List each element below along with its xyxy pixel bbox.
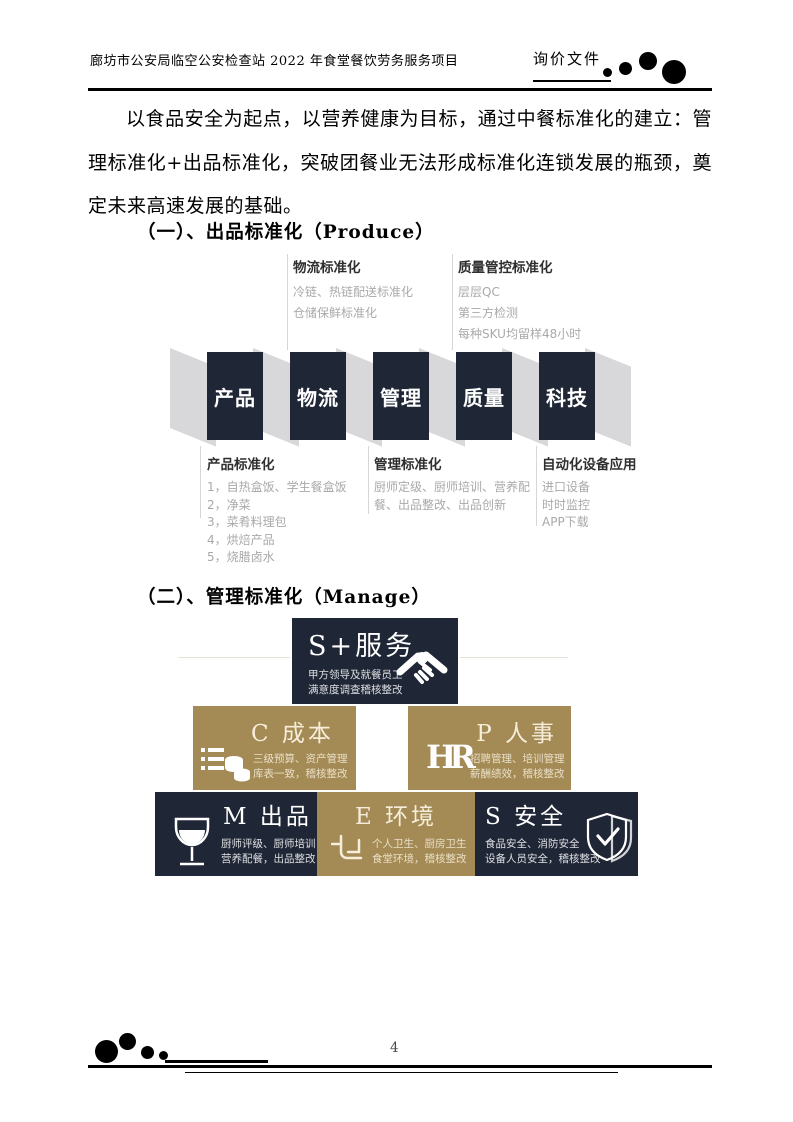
dot-decoration bbox=[662, 60, 686, 84]
management-standardization-group: 管理标准化 厨师定级、厨师培训、营养配餐、出品整改、出品创新 bbox=[374, 453, 534, 514]
group-item: 4，烘焙产品 bbox=[207, 532, 365, 550]
group-item: 第三方检测 bbox=[458, 303, 623, 324]
group-title: 物流标准化 bbox=[293, 256, 458, 276]
dot-decoration bbox=[619, 62, 632, 75]
section-heading-manage: （二）、管理标准化（Manage） bbox=[137, 583, 431, 609]
ledger-coins-icon bbox=[201, 746, 251, 782]
group-item: 冷链、热链配送标准化 bbox=[293, 282, 458, 303]
pillar-product: 产品 bbox=[207, 352, 263, 440]
pillar-management: 管理 bbox=[373, 352, 429, 440]
connector-line bbox=[368, 446, 369, 514]
block-environment: E 环境 个人卫生、厨房卫生 食堂环境，稽核整改 bbox=[317, 792, 475, 876]
group-title: 管理标准化 bbox=[374, 453, 534, 473]
block-personnel: P 人事 招聘管理、培训管理 薪酬绩效，稽核整改 HR bbox=[408, 706, 571, 790]
block-title: M 出品 bbox=[223, 797, 312, 831]
group-item: 每种SKU均留样48小时 bbox=[458, 324, 623, 345]
dot-decoration bbox=[159, 1051, 168, 1060]
header-rule bbox=[88, 88, 712, 91]
group-item: 仓储保鲜标准化 bbox=[293, 303, 458, 324]
connector-line bbox=[200, 446, 201, 518]
wine-glass-icon bbox=[171, 816, 213, 868]
group-item: 5，烧腊卤水 bbox=[207, 549, 365, 567]
footer-thin-rule bbox=[185, 1072, 618, 1073]
desc-line: 甲方领导及就餐员工 bbox=[308, 668, 403, 683]
desc-line: 设备人员安全，稽核整改 bbox=[485, 852, 601, 867]
desc-line: 厨师评级、厨师培训 bbox=[221, 837, 316, 852]
desc-line: 满意度调查稽核整改 bbox=[308, 683, 403, 698]
block-output: M 出品 厨师评级、厨师培训 营养配餐，出品整改 bbox=[155, 792, 317, 876]
quality-control-standardization-group: 质量管控标准化 层层QC 第三方检测 每种SKU均留样48小时 bbox=[458, 256, 623, 345]
group-item: 2，净菜 bbox=[207, 497, 365, 515]
block-desc: 招聘管理、培训管理 薪酬绩效，稽核整改 bbox=[470, 752, 565, 782]
block-desc: 厨师评级、厨师培训 营养配餐，出品整改 bbox=[221, 837, 316, 867]
group-item: 层层QC bbox=[458, 282, 623, 303]
product-standardization-group: 产品标准化 1，自热盒饭、学生餐盒饭 2，净菜 3，菜肴料理包 4，烘焙产品 5… bbox=[207, 453, 365, 567]
desc-line: 营养配餐，出品整改 bbox=[221, 852, 316, 867]
header-title: 廊坊市公安局临空公安检查站 2022 年食堂餐饮劳务服务项目 bbox=[90, 50, 458, 69]
group-item: 厨师定级、厨师培训、营养配餐、出品整改、出品创新 bbox=[374, 479, 534, 514]
dot-decoration bbox=[95, 1040, 118, 1063]
group-item: APP下载 bbox=[542, 514, 692, 532]
dot-decoration bbox=[141, 1046, 154, 1059]
shield-check-icon bbox=[585, 812, 635, 864]
block-title: P 人事 bbox=[476, 714, 557, 748]
dot-decoration bbox=[603, 68, 612, 77]
connector-line bbox=[536, 446, 537, 526]
group-item: 1，自热盒饭、学生餐盒饭 bbox=[207, 479, 365, 497]
pillar-technology: 科技 bbox=[539, 352, 595, 440]
pillar-logistics: 物流 bbox=[290, 352, 346, 440]
intro-paragraph: 以食品安全为起点，以营养健康为目标，通过中餐标准化的建立：管理标准化+出品标准化… bbox=[88, 98, 712, 229]
logistics-standardization-group: 物流标准化 冷链、热链配送标准化 仓储保鲜标准化 bbox=[293, 256, 458, 324]
group-item: 3，菜肴料理包 bbox=[207, 514, 365, 532]
desc-line: 薪酬绩效，稽核整改 bbox=[470, 767, 565, 782]
desc-line: 三级预算、资产管理 bbox=[253, 752, 348, 767]
block-title: E 环境 bbox=[317, 797, 475, 831]
dot-decoration bbox=[639, 52, 657, 70]
hr-icon: HR bbox=[426, 738, 469, 776]
pillar-quality: 质量 bbox=[456, 352, 512, 440]
automation-equipment-group: 自动化设备应用 进口设备 时时监控 APP下载 bbox=[542, 453, 692, 532]
group-title: 产品标准化 bbox=[207, 453, 365, 473]
section-heading-produce: （一）、出品标准化（Produce） bbox=[137, 218, 435, 244]
handshake-icon bbox=[394, 642, 450, 688]
block-desc: 食品安全、消防安全 设备人员安全，稽核整改 bbox=[485, 837, 601, 867]
header-doc-type: 询价文件 bbox=[533, 48, 601, 69]
group-title: 质量管控标准化 bbox=[458, 256, 623, 276]
block-safety: S 安全 食品安全、消防安全 设备人员安全，稽核整改 bbox=[475, 792, 638, 876]
block-service: S+服务 甲方领导及就餐员工 满意度调查稽核整改 bbox=[292, 618, 458, 704]
block-desc: 个人卫生、厨房卫生 食堂环境，稽核整改 bbox=[372, 837, 467, 867]
group-title: 自动化设备应用 bbox=[542, 453, 692, 473]
document-page: 廊坊市公安局临空公安检查站 2022 年食堂餐饮劳务服务项目 询价文件 以食品安… bbox=[0, 0, 793, 1122]
block-desc: 三级预算、资产管理 库表一致，稽核整改 bbox=[253, 752, 348, 782]
block-desc: 甲方领导及就餐员工 满意度调查稽核整改 bbox=[308, 668, 403, 698]
desc-line: 食品安全、消防安全 bbox=[485, 837, 601, 852]
doc-type-underline bbox=[533, 80, 611, 82]
desc-line: 库表一致，稽核整改 bbox=[253, 767, 348, 782]
footer-rule bbox=[88, 1065, 712, 1068]
desc-line: 个人卫生、厨房卫生 bbox=[372, 837, 467, 852]
block-cost: C 成本 三级预算、资产管理 库表一致，稽核整改 bbox=[193, 706, 356, 790]
footer-short-rule bbox=[165, 1060, 268, 1063]
faint-line bbox=[178, 657, 290, 658]
connector-line bbox=[287, 254, 288, 350]
group-item: 时时监控 bbox=[542, 497, 692, 515]
group-item: 进口设备 bbox=[542, 479, 692, 497]
floorplan-icon bbox=[331, 834, 365, 864]
faint-line bbox=[460, 657, 568, 658]
page-number: 4 bbox=[390, 1040, 399, 1056]
dot-decoration bbox=[119, 1033, 136, 1050]
desc-line: 食堂环境，稽核整改 bbox=[372, 852, 467, 867]
desc-line: 招聘管理、培训管理 bbox=[470, 752, 565, 767]
block-title: S 安全 bbox=[485, 797, 566, 831]
block-title: C 成本 bbox=[251, 714, 334, 748]
